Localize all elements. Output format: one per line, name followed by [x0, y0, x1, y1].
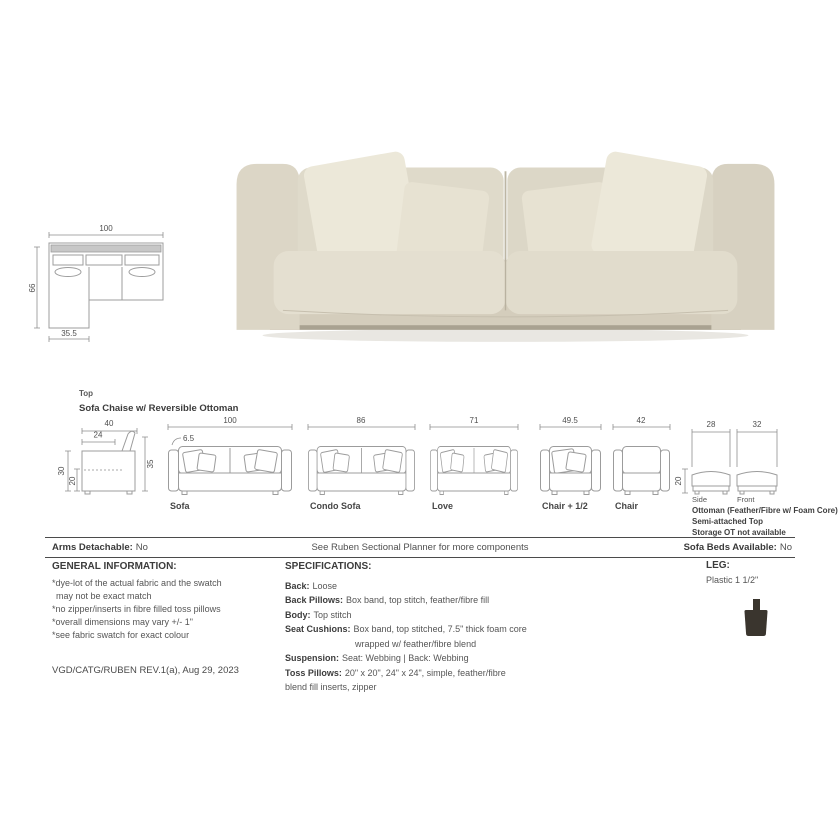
svg-text:6.5: 6.5: [183, 434, 195, 443]
svg-text:32: 32: [753, 420, 762, 429]
specifications-heading: SPECIFICATIONS:: [285, 560, 715, 575]
svg-text:42: 42: [637, 416, 646, 425]
condo-sofa-label: Condo Sofa: [310, 501, 361, 511]
ottoman-drawing: 28 32 20 Side Front Ottoman (Feather/Fib…: [674, 420, 838, 537]
svg-text:20: 20: [674, 476, 683, 485]
ottoman-caption-1: Ottoman (Feather/Fibre w/ Foam Core): [692, 506, 838, 515]
lineup-drawings: Top Sofa Chaise w/ Reversible Ottoman 40…: [45, 385, 840, 537]
leg-heading: LEG:: [706, 560, 758, 571]
info-band: Arms Detachable:No See Ruben Sectional P…: [45, 537, 795, 558]
sofa-drawing: 100 6.5 Sofa: [168, 416, 292, 511]
floor-shadow: [263, 329, 749, 342]
svg-text:40: 40: [105, 419, 114, 428]
svg-text:100: 100: [99, 224, 113, 233]
condo-sofa-drawing: 86 Condo Sofa: [308, 416, 415, 511]
svg-text:49.5: 49.5: [562, 416, 578, 425]
general-note-line: *see fabric swatch for exact colour: [52, 629, 280, 642]
svg-text:20: 20: [68, 476, 77, 485]
chair-half-drawing: 49.5 Chair + 1/2: [540, 416, 601, 511]
general-note-line: *overall dimensions may vary +/- 1": [52, 616, 280, 629]
svg-text:66: 66: [28, 283, 37, 292]
love-drawing: 71 Love: [430, 416, 518, 511]
specifications-section: SPECIFICATIONS: Back:Loose Back Pillows:…: [285, 560, 715, 695]
svg-text:30: 30: [57, 466, 66, 475]
sofa-label: Sofa: [170, 501, 190, 511]
product-photo: [218, 78, 793, 348]
spec-row-continuation: wrapped w/ feather/fibre blend: [285, 637, 715, 652]
chair-drawing: 42 Chair: [613, 416, 670, 511]
ottoman-caption-2: Semi-attached Top: [692, 517, 763, 526]
spec-row: Body:Top stitch: [285, 608, 715, 623]
svg-text:35.5: 35.5: [61, 329, 77, 338]
spec-row-continuation: blend fill inserts, zipper: [285, 680, 715, 695]
leg-section: LEG: Plastic 1 1/2": [706, 560, 758, 585]
plan-outline: [49, 243, 163, 328]
leg-value: Plastic 1 1/2": [706, 575, 758, 585]
lineup-title: Sofa Chaise w/ Reversible Ottoman: [79, 403, 239, 414]
svg-text:28: 28: [707, 420, 716, 429]
general-information-section: GENERAL INFORMATION: *dye-lot of the act…: [52, 560, 280, 642]
spec-row: Seat Cushions:Box band, top stitched, 7.…: [285, 622, 715, 637]
svg-text:24: 24: [94, 431, 103, 440]
plan-dim-chaise: 35.5: [49, 329, 89, 342]
svg-text:71: 71: [470, 416, 479, 425]
chair-half-label: Chair + 1/2: [542, 501, 588, 511]
spec-row: Toss Pillows:20" x 20", 24" x 24", simpl…: [285, 666, 715, 681]
general-note-line: *dye-lot of the actual fabric and the sw…: [52, 577, 280, 590]
plan-view-drawing: 100 66 35.5: [30, 222, 180, 350]
ottoman-front-label: Front: [737, 495, 755, 504]
plan-dim-width: 100: [49, 224, 163, 238]
sofa-beds-available: Sofa Beds Available:No: [684, 542, 792, 553]
general-note-line: *no zipper/inserts in fibre filled toss …: [52, 603, 280, 616]
sectional-planner-note: See Ruben Sectional Planner for more com…: [45, 542, 795, 553]
spec-row: Suspension:Seat: Webbing | Back: Webbing: [285, 651, 715, 666]
spec-row: Back Pillows:Box band, top stitch, feath…: [285, 593, 715, 608]
chair-label: Chair: [615, 501, 639, 511]
arms-detachable: Arms Detachable:No: [52, 542, 148, 553]
ottoman-side-label: Side: [692, 495, 707, 504]
view-label: Top: [79, 389, 93, 398]
spec-row: Back:Loose: [285, 579, 715, 594]
ottoman-caption-3: Storage OT not available: [692, 528, 786, 537]
plastic-leg-icon: [742, 599, 770, 639]
revision-footer: VGD/CATG/RUBEN REV.1(a), Aug 29, 2023: [52, 665, 239, 676]
general-note-line: may not be exact match: [52, 590, 280, 603]
svg-text:35: 35: [146, 459, 155, 468]
seat-cushions: [274, 251, 738, 317]
love-label: Love: [432, 501, 453, 511]
plan-dim-depth: 66: [28, 247, 40, 328]
general-information-heading: GENERAL INFORMATION:: [52, 560, 280, 573]
profile-drawing: 40 24 30 20 35: [57, 419, 155, 494]
svg-text:100: 100: [223, 416, 237, 425]
svg-text:86: 86: [357, 416, 366, 425]
